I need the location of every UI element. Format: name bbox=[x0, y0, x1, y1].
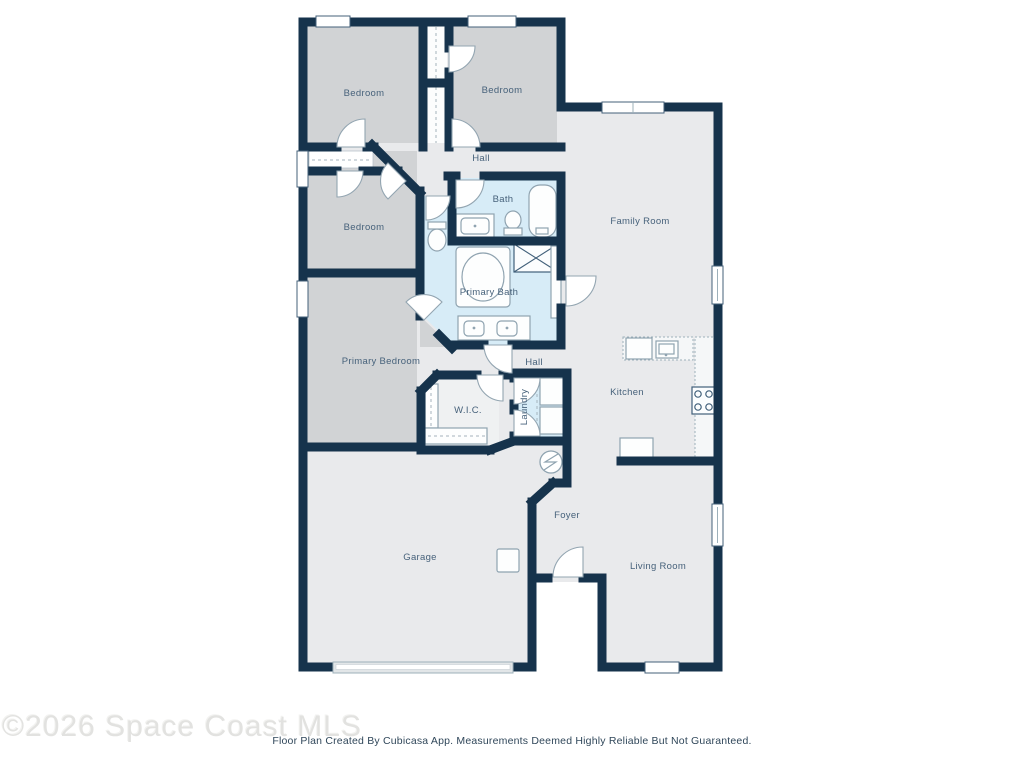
disclaimer-text: Floor Plan Created By Cubicasa App. Meas… bbox=[0, 735, 1024, 747]
label-family-room: Family Room bbox=[610, 216, 669, 227]
garage-door-panel bbox=[336, 665, 510, 670]
water-heater bbox=[497, 549, 519, 572]
label-bedroom-3: Bedroom bbox=[344, 222, 385, 233]
stove-burner-4 bbox=[706, 404, 712, 410]
window-bedroom2 bbox=[468, 16, 516, 27]
window-bedroom3-left bbox=[297, 151, 308, 187]
label-primary-bath: Primary Bath bbox=[460, 287, 519, 298]
label-bedroom-1: Bedroom bbox=[344, 88, 385, 99]
label-laundry: Laundry bbox=[519, 389, 530, 425]
label-foyer: Foyer bbox=[554, 510, 580, 521]
stove-burner-3 bbox=[695, 404, 701, 410]
primary-sink-drain-left bbox=[473, 327, 476, 330]
label-bedroom-2: Bedroom bbox=[482, 85, 523, 96]
stove bbox=[692, 387, 716, 414]
label-garage: Garage bbox=[403, 552, 437, 563]
stove-burner-2 bbox=[706, 391, 712, 397]
washer bbox=[540, 378, 565, 405]
primary-toilet-bowl bbox=[428, 229, 446, 251]
window-primary-left bbox=[297, 281, 308, 317]
stove-burner-1 bbox=[695, 391, 701, 397]
kitchen-sink-drain bbox=[665, 354, 668, 357]
window-living-bottom bbox=[645, 662, 679, 673]
label-kitchen: Kitchen bbox=[610, 387, 644, 398]
bathtub-faucet bbox=[536, 228, 548, 234]
primary-sink-drain-right bbox=[506, 327, 509, 330]
window-bedroom1 bbox=[316, 16, 350, 27]
label-hall-upper: Hall bbox=[472, 153, 490, 164]
bath-vanity-drain bbox=[474, 225, 477, 228]
floor-plan: Bedroom Bedroom Hall Bath Bedroom Family… bbox=[0, 0, 1024, 768]
kitchen-sink-basin bbox=[659, 344, 674, 354]
kitchen-island bbox=[620, 438, 653, 459]
label-primary-bedroom: Primary Bedroom bbox=[342, 356, 420, 367]
bath-toilet-bowl bbox=[505, 211, 521, 229]
label-living-room: Living Room bbox=[630, 561, 686, 572]
label-hall-lower: Hall bbox=[525, 357, 543, 368]
label-wic: W.I.C. bbox=[454, 405, 482, 416]
bath-toilet-tank bbox=[504, 228, 522, 235]
dryer bbox=[540, 407, 565, 434]
refrigerator bbox=[626, 338, 652, 359]
label-bath: Bath bbox=[493, 194, 514, 205]
primary-toilet-tank bbox=[428, 222, 446, 229]
